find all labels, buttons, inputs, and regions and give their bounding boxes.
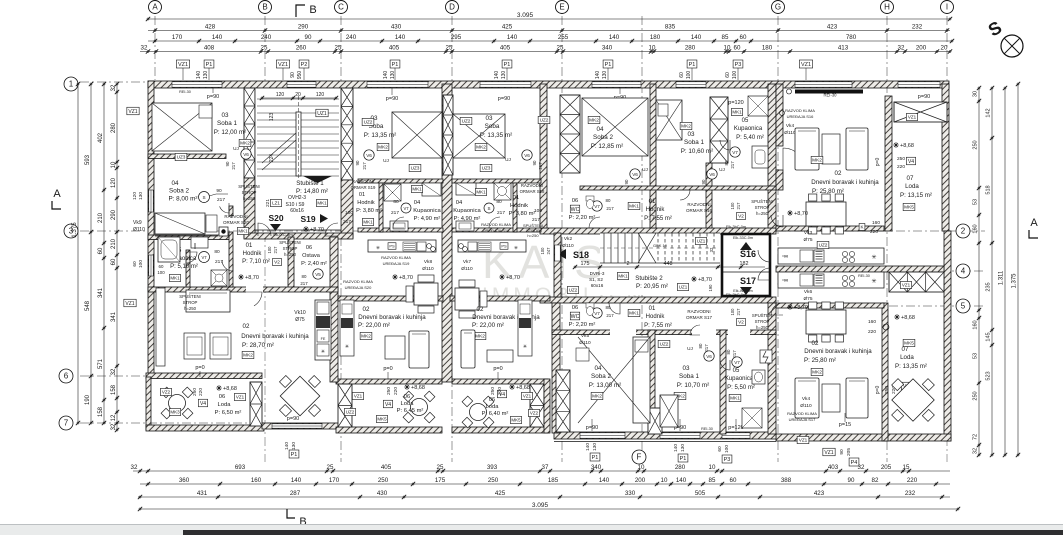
- svg-text:Hodnik: Hodnik: [646, 314, 666, 320]
- svg-text:217: 217: [732, 350, 737, 358]
- svg-text:MK5: MK5: [904, 205, 914, 210]
- svg-text:P: 7,10 m²: P: 7,10 m²: [242, 259, 270, 265]
- svg-text:MK2: MK2: [361, 334, 371, 339]
- svg-text:S20: S20: [268, 213, 283, 223]
- svg-text:p=90: p=90: [287, 416, 299, 422]
- svg-text:130: 130: [592, 443, 598, 451]
- svg-text:UJ: UJ: [687, 346, 693, 351]
- svg-text:MK1: MK1: [629, 204, 639, 209]
- svg-text:Soba 2: Soba 2: [591, 373, 611, 380]
- svg-text:60: 60: [725, 72, 731, 78]
- svg-text:140: 140: [609, 34, 620, 41]
- svg-text:205: 205: [881, 464, 892, 471]
- svg-text:VZ1: VZ1: [801, 62, 811, 68]
- svg-text:85: 85: [722, 34, 729, 41]
- svg-text:53: 53: [973, 199, 979, 205]
- svg-text:RAZVODNI: RAZVODNI: [224, 214, 247, 219]
- svg-text:160: 160: [973, 224, 979, 233]
- svg-text:32: 32: [131, 464, 138, 471]
- svg-text:217: 217: [538, 162, 543, 170]
- svg-text:217: 217: [606, 313, 614, 318]
- svg-text:250: 250: [973, 140, 979, 149]
- svg-text:V6: V6: [243, 152, 249, 157]
- svg-text:120: 120: [276, 92, 285, 98]
- svg-text:25: 25: [335, 45, 342, 52]
- svg-text:UZ2: UZ2: [819, 243, 828, 248]
- svg-text:P: 5,10 m²: P: 5,10 m²: [170, 264, 198, 270]
- svg-text:RAZVOD KLIMA: RAZVOD KLIMA: [343, 279, 373, 284]
- svg-text:+8,70: +8,70: [310, 227, 324, 233]
- svg-text:25: 25: [261, 45, 268, 52]
- svg-text:UZ2: UZ2: [540, 118, 549, 123]
- svg-text:VZ1: VZ1: [902, 283, 911, 288]
- svg-text:80: 80: [724, 160, 729, 165]
- svg-text:P: 2,20 m²: P: 2,20 m²: [569, 215, 596, 221]
- svg-text:423: 423: [827, 24, 838, 31]
- svg-text:V6: V6: [524, 153, 530, 158]
- svg-text:4: 4: [961, 267, 966, 276]
- svg-text:140: 140: [291, 477, 302, 484]
- svg-text:Vk4: Vk4: [802, 396, 811, 402]
- svg-text:D: D: [449, 3, 455, 12]
- svg-text:+8,68: +8,68: [516, 385, 530, 391]
- svg-text:FE: FE: [321, 337, 326, 341]
- svg-text:428: 428: [205, 24, 216, 31]
- svg-text:S1, S2: S1, S2: [589, 277, 603, 282]
- svg-text:WC: WC: [571, 207, 580, 213]
- svg-text:100: 100: [267, 246, 272, 254]
- svg-text:403: 403: [828, 464, 839, 471]
- svg-text:1: 1: [69, 80, 74, 89]
- svg-text:UZ3: UZ3: [411, 166, 420, 171]
- svg-text:PS: PS: [501, 243, 507, 248]
- svg-text:P: 8,00 m²: P: 8,00 m²: [168, 196, 197, 203]
- svg-text:P3: P3: [724, 457, 731, 463]
- svg-text:280: 280: [685, 45, 696, 52]
- svg-text:220: 220: [393, 387, 399, 395]
- svg-text:217: 217: [497, 210, 505, 216]
- svg-text:VZ1: VZ1: [908, 115, 917, 120]
- svg-text:Loda: Loda: [900, 354, 914, 361]
- svg-text:P1: P1: [291, 452, 298, 458]
- svg-text:MK1: MK1: [618, 274, 628, 279]
- svg-text:MK2: MK2: [589, 118, 599, 123]
- svg-text:MK1: MK1: [317, 201, 327, 206]
- svg-text:V2: V2: [738, 320, 744, 325]
- svg-text:130: 130: [501, 71, 507, 80]
- svg-text:p=90: p=90: [498, 96, 510, 102]
- svg-text:VZ1: VZ1: [125, 301, 134, 307]
- svg-text:V7: V7: [732, 150, 738, 155]
- svg-text:UZ2: UZ2: [364, 120, 373, 125]
- svg-text:p=0: p=0: [195, 365, 204, 371]
- svg-text:340: 340: [602, 45, 613, 52]
- svg-text:Dnevni boravak i kuhinja: Dnevni boravak i kuhinja: [358, 314, 426, 321]
- svg-text:Soba: Soba: [485, 123, 500, 130]
- svg-text:Dnevni boravak i kuhinja: Dnevni boravak i kuhinja: [804, 348, 872, 355]
- svg-text:505: 505: [695, 490, 706, 497]
- svg-text:P: 13,15 m²: P: 13,15 m²: [900, 192, 932, 199]
- svg-text:Ø110: Ø110: [579, 340, 591, 346]
- svg-text:250: 250: [897, 156, 905, 162]
- svg-text:RAZVODNI: RAZVODNI: [521, 183, 543, 188]
- svg-text:100: 100: [732, 71, 738, 80]
- svg-text:V2: V2: [738, 214, 744, 219]
- svg-text:Loda: Loda: [401, 401, 415, 407]
- svg-text:Vk9: Vk9: [133, 220, 142, 226]
- svg-text:MK1: MK1: [730, 396, 740, 401]
- svg-text:32: 32: [111, 368, 117, 375]
- svg-text:p=0: p=0: [875, 386, 881, 395]
- svg-text:VZ1: VZ1: [278, 62, 288, 68]
- svg-text:04: 04: [596, 126, 604, 133]
- svg-text:P: 12,00 m²: P: 12,00 m²: [214, 129, 247, 136]
- svg-text:Ostava: Ostava: [302, 253, 321, 259]
- svg-text:145: 145: [986, 332, 992, 341]
- svg-text:1.375: 1.375: [71, 222, 78, 238]
- svg-text:P1: P1: [504, 62, 511, 68]
- svg-text:140: 140: [395, 34, 406, 41]
- svg-text:ORMAR S18: ORMAR S18: [520, 189, 545, 194]
- svg-text:VZ1: VZ1: [523, 394, 532, 399]
- svg-text:VZ2: VZ2: [530, 411, 539, 416]
- svg-text:217: 217: [343, 219, 351, 225]
- svg-text:MK2: MK2: [812, 370, 822, 375]
- svg-text:25: 25: [327, 464, 334, 471]
- svg-text:MK5: MK5: [511, 418, 521, 423]
- svg-text:VZ1: VZ1: [128, 109, 137, 115]
- svg-text:10: 10: [649, 45, 656, 52]
- svg-text:p=90: p=90: [386, 96, 398, 102]
- svg-text:P1: P1: [592, 455, 599, 461]
- svg-text:S17: S17: [740, 276, 756, 286]
- svg-text:p=0: p=0: [493, 366, 502, 372]
- svg-text:V4: V4: [385, 402, 391, 408]
- svg-text:235: 235: [986, 282, 992, 291]
- svg-text:UZ3: UZ3: [482, 166, 491, 171]
- svg-text:Vk10: Vk10: [294, 310, 306, 316]
- svg-text:217: 217: [730, 161, 735, 169]
- svg-text:90: 90: [225, 161, 230, 166]
- svg-text:20: 20: [941, 45, 948, 52]
- svg-text:RAZVODNI: RAZVODNI: [687, 309, 710, 314]
- svg-text:130: 130: [390, 71, 396, 80]
- svg-text:RAZVOD KLIMA: RAZVOD KLIMA: [481, 222, 511, 227]
- svg-text:360: 360: [179, 477, 190, 484]
- svg-text:140: 140: [691, 34, 702, 41]
- svg-text:P: 2,40 m²: P: 2,40 m²: [301, 261, 327, 267]
- svg-text:430: 430: [391, 24, 402, 31]
- svg-text:MK2: MK2: [240, 141, 250, 146]
- svg-text:MK2: MK2: [476, 145, 486, 150]
- svg-text:160: 160: [872, 220, 880, 226]
- svg-text:UREĐAJA S20: UREĐAJA S20: [345, 285, 372, 290]
- svg-text:UREĐAJA S18: UREĐAJA S18: [483, 228, 510, 233]
- svg-text:P1: P1: [689, 62, 696, 68]
- svg-text:P: 6,45 m²: P: 6,45 m²: [397, 408, 424, 414]
- svg-text:VZ1: VZ1: [824, 450, 833, 456]
- svg-text:405: 405: [381, 464, 392, 471]
- svg-text:2: 2: [961, 227, 966, 236]
- svg-text:250: 250: [378, 477, 389, 484]
- svg-text:03: 03: [485, 115, 493, 122]
- svg-text:02: 02: [243, 323, 250, 330]
- svg-text:+8,70: +8,70: [506, 275, 520, 281]
- svg-text:160: 160: [973, 320, 979, 329]
- svg-text:290: 290: [111, 209, 117, 220]
- svg-text:Kupaonica: Kupaonica: [734, 126, 763, 132]
- svg-text:ORMAR S16: ORMAR S16: [686, 208, 713, 213]
- svg-text:S: S: [202, 195, 205, 200]
- svg-text:80: 80: [393, 199, 399, 205]
- svg-text:175: 175: [581, 261, 590, 267]
- svg-text:V6: V6: [632, 172, 638, 177]
- svg-text:GBK 19: GBK 19: [653, 243, 668, 248]
- svg-text:C: C: [338, 3, 344, 12]
- svg-text:I: I: [946, 3, 948, 12]
- svg-text:280: 280: [675, 464, 686, 471]
- svg-text:+8,70: +8,70: [399, 275, 413, 281]
- svg-text:90: 90: [839, 449, 845, 455]
- svg-text:02: 02: [477, 306, 484, 313]
- svg-text:P4: P4: [851, 460, 858, 466]
- svg-text:P: 6,40 m²: P: 6,40 m²: [482, 411, 509, 417]
- svg-text:02: 02: [835, 170, 842, 177]
- svg-text:S16: S16: [740, 249, 756, 259]
- svg-text:P3: P3: [735, 62, 742, 68]
- svg-text:Ø110: Ø110: [422, 266, 434, 272]
- svg-text:548: 548: [85, 300, 91, 311]
- svg-text:SPUŠTENI: SPUŠTENI: [751, 199, 773, 204]
- svg-text:32: 32: [898, 45, 905, 52]
- svg-text:✳: ✳: [321, 349, 325, 355]
- svg-text:STROP: STROP: [755, 319, 770, 324]
- svg-text:250: 250: [490, 387, 496, 395]
- svg-text:210: 210: [98, 212, 104, 223]
- svg-text:WC: WC: [571, 314, 580, 320]
- svg-text:03: 03: [687, 131, 695, 138]
- svg-text:217: 217: [217, 197, 225, 203]
- svg-text:01: 01: [649, 306, 656, 312]
- svg-text:p=0: p=0: [875, 158, 881, 167]
- svg-text:190: 190: [708, 284, 713, 292]
- svg-text:90: 90: [701, 179, 706, 184]
- svg-text:ORMAR S17: ORMAR S17: [686, 315, 713, 320]
- svg-text:240: 240: [261, 34, 272, 41]
- svg-text:MK1: MK1: [476, 190, 486, 195]
- svg-text:950: 950: [297, 71, 303, 80]
- svg-text:Ø75: Ø75: [803, 296, 812, 302]
- svg-text:ORMAR S19: ORMAR S19: [351, 185, 376, 190]
- svg-text:V4: V4: [200, 401, 206, 407]
- svg-text:250: 250: [973, 391, 979, 400]
- svg-text:P: 10,70 m²: P: 10,70 m²: [677, 382, 710, 389]
- svg-text:280: 280: [111, 122, 117, 133]
- svg-text:Ø110: Ø110: [784, 130, 796, 136]
- svg-text:P: 20,95 m²: P: 20,95 m²: [636, 283, 668, 290]
- svg-text:VZ2: VZ2: [162, 390, 171, 395]
- svg-text:✳: ✳: [514, 246, 518, 252]
- svg-text:120: 120: [111, 177, 117, 188]
- svg-text:P: 5,50 m²: P: 5,50 m²: [727, 385, 755, 391]
- svg-text:LZ1: LZ1: [272, 201, 280, 206]
- svg-text:03: 03: [682, 365, 690, 372]
- svg-text:01: 01: [513, 195, 519, 201]
- svg-text:120: 120: [316, 92, 325, 98]
- svg-text:72: 72: [973, 434, 979, 440]
- svg-text:Dnevni boravak i kuhinja: Dnevni boravak i kuhinja: [241, 333, 309, 340]
- svg-text:693: 693: [235, 464, 246, 471]
- svg-text:Ø110: Ø110: [133, 227, 145, 233]
- svg-text:P1: P1: [605, 62, 612, 68]
- svg-text:UZ1: UZ1: [679, 285, 688, 290]
- svg-text:130: 130: [203, 71, 209, 80]
- svg-text:25: 25: [557, 45, 564, 52]
- svg-text:217: 217: [736, 202, 741, 210]
- svg-text:388: 388: [781, 477, 792, 484]
- svg-text:140: 140: [673, 444, 679, 452]
- svg-text:Vk2: Vk2: [564, 236, 573, 242]
- svg-text:Ø110: Ø110: [461, 266, 473, 272]
- svg-text:UJ: UJ: [383, 158, 389, 163]
- svg-text:341: 341: [98, 287, 104, 298]
- svg-text:V7: V7: [403, 206, 409, 211]
- svg-text:P: 13,35 m²: P: 13,35 m²: [364, 132, 397, 139]
- svg-text:60x16: 60x16: [591, 283, 604, 288]
- svg-text:MK2: MK2: [378, 145, 388, 150]
- svg-text:180: 180: [650, 34, 661, 41]
- svg-text:RAZVODNI: RAZVODNI: [352, 179, 374, 184]
- svg-text:571: 571: [98, 358, 104, 369]
- svg-text:10: 10: [724, 45, 731, 52]
- svg-text:h=250: h=250: [527, 233, 539, 238]
- svg-text:130: 130: [138, 192, 144, 200]
- svg-text:01: 01: [649, 199, 656, 205]
- svg-text:100: 100: [724, 445, 730, 453]
- svg-text:K: K: [860, 225, 863, 230]
- svg-text:140: 140: [599, 477, 610, 484]
- svg-text:Stubište 2: Stubište 2: [635, 275, 663, 282]
- svg-text:Ø75: Ø75: [295, 317, 305, 323]
- svg-text:Loda: Loda: [218, 402, 232, 408]
- svg-text:P: 28,70 m²: P: 28,70 m²: [242, 342, 274, 349]
- svg-text:04: 04: [456, 200, 463, 206]
- svg-text:217: 217: [273, 246, 278, 254]
- svg-text:160: 160: [251, 477, 262, 484]
- svg-text:160: 160: [868, 319, 876, 325]
- svg-text:03: 03: [221, 112, 229, 119]
- svg-text:142: 142: [986, 108, 992, 117]
- svg-text:Vk7: Vk7: [463, 259, 472, 265]
- svg-text:100: 100: [686, 71, 692, 80]
- svg-text:247: 247: [546, 247, 551, 255]
- svg-text:SPUŠTENI: SPUŠTENI: [279, 240, 301, 245]
- svg-text:UZ2: UZ2: [660, 342, 669, 347]
- svg-text:2: 2: [627, 261, 630, 267]
- svg-text:UZ3: UZ3: [177, 155, 186, 160]
- svg-text:130: 130: [680, 444, 686, 452]
- svg-text:UZ2: UZ2: [462, 119, 471, 124]
- svg-text:10: 10: [638, 464, 645, 471]
- svg-text:Elk-33C-0m: Elk-33C-0m: [733, 236, 753, 240]
- svg-text:220: 220: [907, 477, 918, 484]
- svg-text:210: 210: [111, 238, 117, 249]
- svg-text:175: 175: [435, 477, 446, 484]
- svg-text:Ek-0-C-6m: Ek-0-C-6m: [273, 232, 293, 237]
- svg-text:P1: P1: [392, 62, 399, 68]
- svg-text:P: 22,00 m²: P: 22,00 m²: [472, 322, 504, 329]
- svg-text:SPUŠTENI: SPUŠTENI: [179, 294, 201, 299]
- svg-text:32: 32: [111, 423, 117, 430]
- svg-text:P: 25,80 m²: P: 25,80 m²: [804, 357, 836, 364]
- svg-text:MK1: MK1: [238, 229, 248, 234]
- svg-text:OVH2-3: OVH2-3: [288, 195, 306, 201]
- svg-text:06: 06: [572, 305, 578, 311]
- svg-text:F: F: [637, 453, 642, 462]
- svg-text:158: 158: [111, 384, 117, 395]
- svg-text:P1: P1: [206, 62, 213, 68]
- svg-text:Stubište 1: Stubište 1: [296, 180, 324, 187]
- svg-text:A: A: [53, 188, 61, 200]
- svg-text:UZ1: UZ1: [697, 239, 706, 244]
- svg-text:H: H: [784, 278, 787, 283]
- svg-text:VZ1: VZ1: [354, 394, 363, 399]
- svg-text:04: 04: [171, 180, 179, 187]
- svg-text:V7: V7: [201, 255, 207, 260]
- svg-text:ORMAR S20: ORMAR S20: [223, 220, 250, 225]
- svg-text:405: 405: [500, 45, 511, 52]
- svg-text:Ø110: Ø110: [800, 403, 812, 409]
- svg-text:Vk8: Vk8: [424, 259, 433, 265]
- svg-text:6: 6: [64, 372, 69, 381]
- svg-text:01: 01: [246, 243, 253, 249]
- svg-text:06: 06: [306, 245, 312, 251]
- svg-text:20: 20: [295, 92, 301, 98]
- svg-text:STROP: STROP: [183, 300, 198, 305]
- svg-text:7: 7: [64, 419, 69, 428]
- svg-text:220: 220: [497, 387, 503, 395]
- svg-text:217: 217: [362, 162, 367, 170]
- svg-text:205: 205: [846, 448, 852, 456]
- svg-text:S18: S18: [573, 250, 589, 260]
- svg-text:V7: V7: [594, 311, 600, 316]
- svg-text:PS: PS: [389, 243, 395, 248]
- svg-text:VZ1: VZ1: [178, 62, 188, 68]
- svg-text:30: 30: [973, 91, 979, 97]
- svg-text:P2: P2: [301, 62, 308, 68]
- svg-text:60: 60: [717, 446, 723, 452]
- svg-text:VZ1: VZ1: [799, 438, 808, 443]
- svg-text:H: H: [784, 254, 787, 259]
- svg-text:h=250: h=250: [243, 196, 256, 201]
- svg-text:Kupaonica: Kupaonica: [453, 208, 481, 214]
- svg-text:60: 60: [740, 34, 747, 41]
- svg-text:REI-30: REI-30: [179, 90, 191, 94]
- svg-text:G: G: [775, 3, 781, 12]
- svg-text:RAZVODNI: RAZVODNI: [687, 202, 710, 207]
- svg-text:100: 100: [138, 260, 144, 268]
- svg-text:Kupaonica: Kupaonica: [725, 376, 754, 382]
- svg-text:UJ: UJ: [642, 167, 648, 172]
- svg-text:MK5: MK5: [904, 341, 914, 346]
- svg-text:100: 100: [540, 247, 545, 255]
- svg-text:408: 408: [204, 45, 215, 52]
- svg-text:+8,70: +8,70: [245, 275, 259, 281]
- svg-text:P: 2,20 m²: P: 2,20 m²: [569, 322, 596, 328]
- svg-text:100: 100: [345, 210, 353, 216]
- svg-text:+8,68: +8,68: [900, 143, 914, 149]
- svg-text:Elk-3bC-0m: Elk-3bC-0m: [726, 293, 746, 297]
